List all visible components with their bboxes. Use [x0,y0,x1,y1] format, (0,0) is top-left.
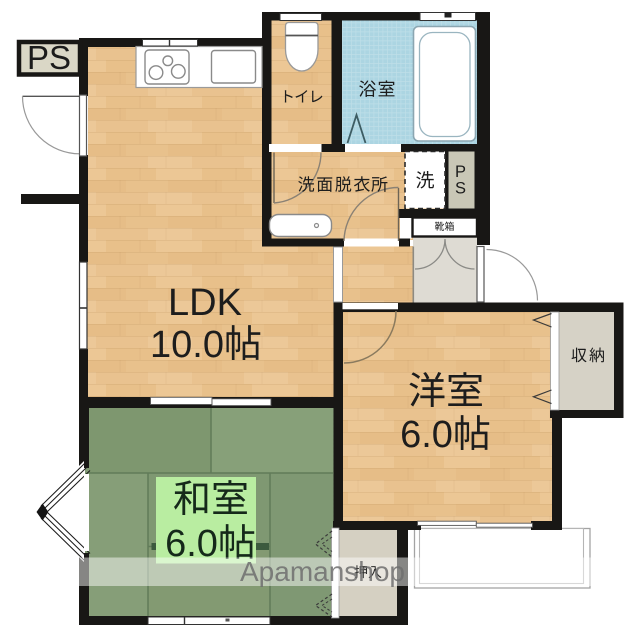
svg-text:LDK: LDK [168,282,242,324]
svg-text:10.0: 10.0 [150,324,224,366]
svg-text:PS: PS [27,39,71,76]
svg-text:Apamanshop: Apamanshop [240,556,405,587]
svg-text:S: S [455,180,466,198]
svg-text:6.0: 6.0 [400,414,453,456]
svg-text:P: P [455,163,466,181]
